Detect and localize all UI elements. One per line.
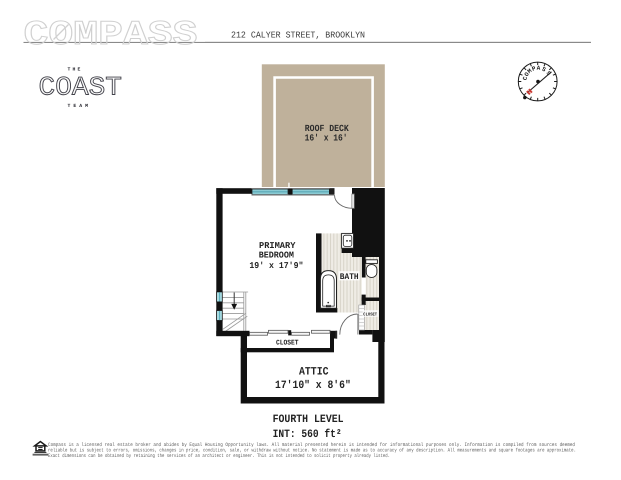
svg-text:Exact dimensions can be obtain: Exact dimensions can be obtained by reta… xyxy=(48,453,390,459)
svg-text:COAST: COAST xyxy=(39,72,123,102)
svg-text:17'10" x 8'6": 17'10" x 8'6" xyxy=(275,379,351,392)
svg-text:19' x 17'9": 19' x 17'9" xyxy=(249,261,303,271)
svg-text:FOURTH LEVEL: FOURTH LEVEL xyxy=(273,414,344,426)
svg-text:16' x 16': 16' x 16' xyxy=(305,133,348,144)
svg-text:212 CALYER STREET, BROOKLYN: 212 CALYER STREET, BROOKLYN xyxy=(231,30,365,40)
svg-text:CLOSET: CLOSET xyxy=(363,312,377,317)
svg-text:ATTIC: ATTIC xyxy=(299,366,329,378)
svg-text:INT: 560 ft²: INT: 560 ft² xyxy=(273,428,342,441)
svg-text:PRIMARY: PRIMARY xyxy=(259,241,296,251)
svg-text:TEAM: TEAM xyxy=(68,103,92,109)
svg-text:CLOSET: CLOSET xyxy=(276,339,299,347)
svg-text:COMPASS: COMPASS xyxy=(24,16,198,55)
svg-text:BEDROOM: BEDROOM xyxy=(259,250,294,260)
svg-text:BATH: BATH xyxy=(340,272,359,282)
